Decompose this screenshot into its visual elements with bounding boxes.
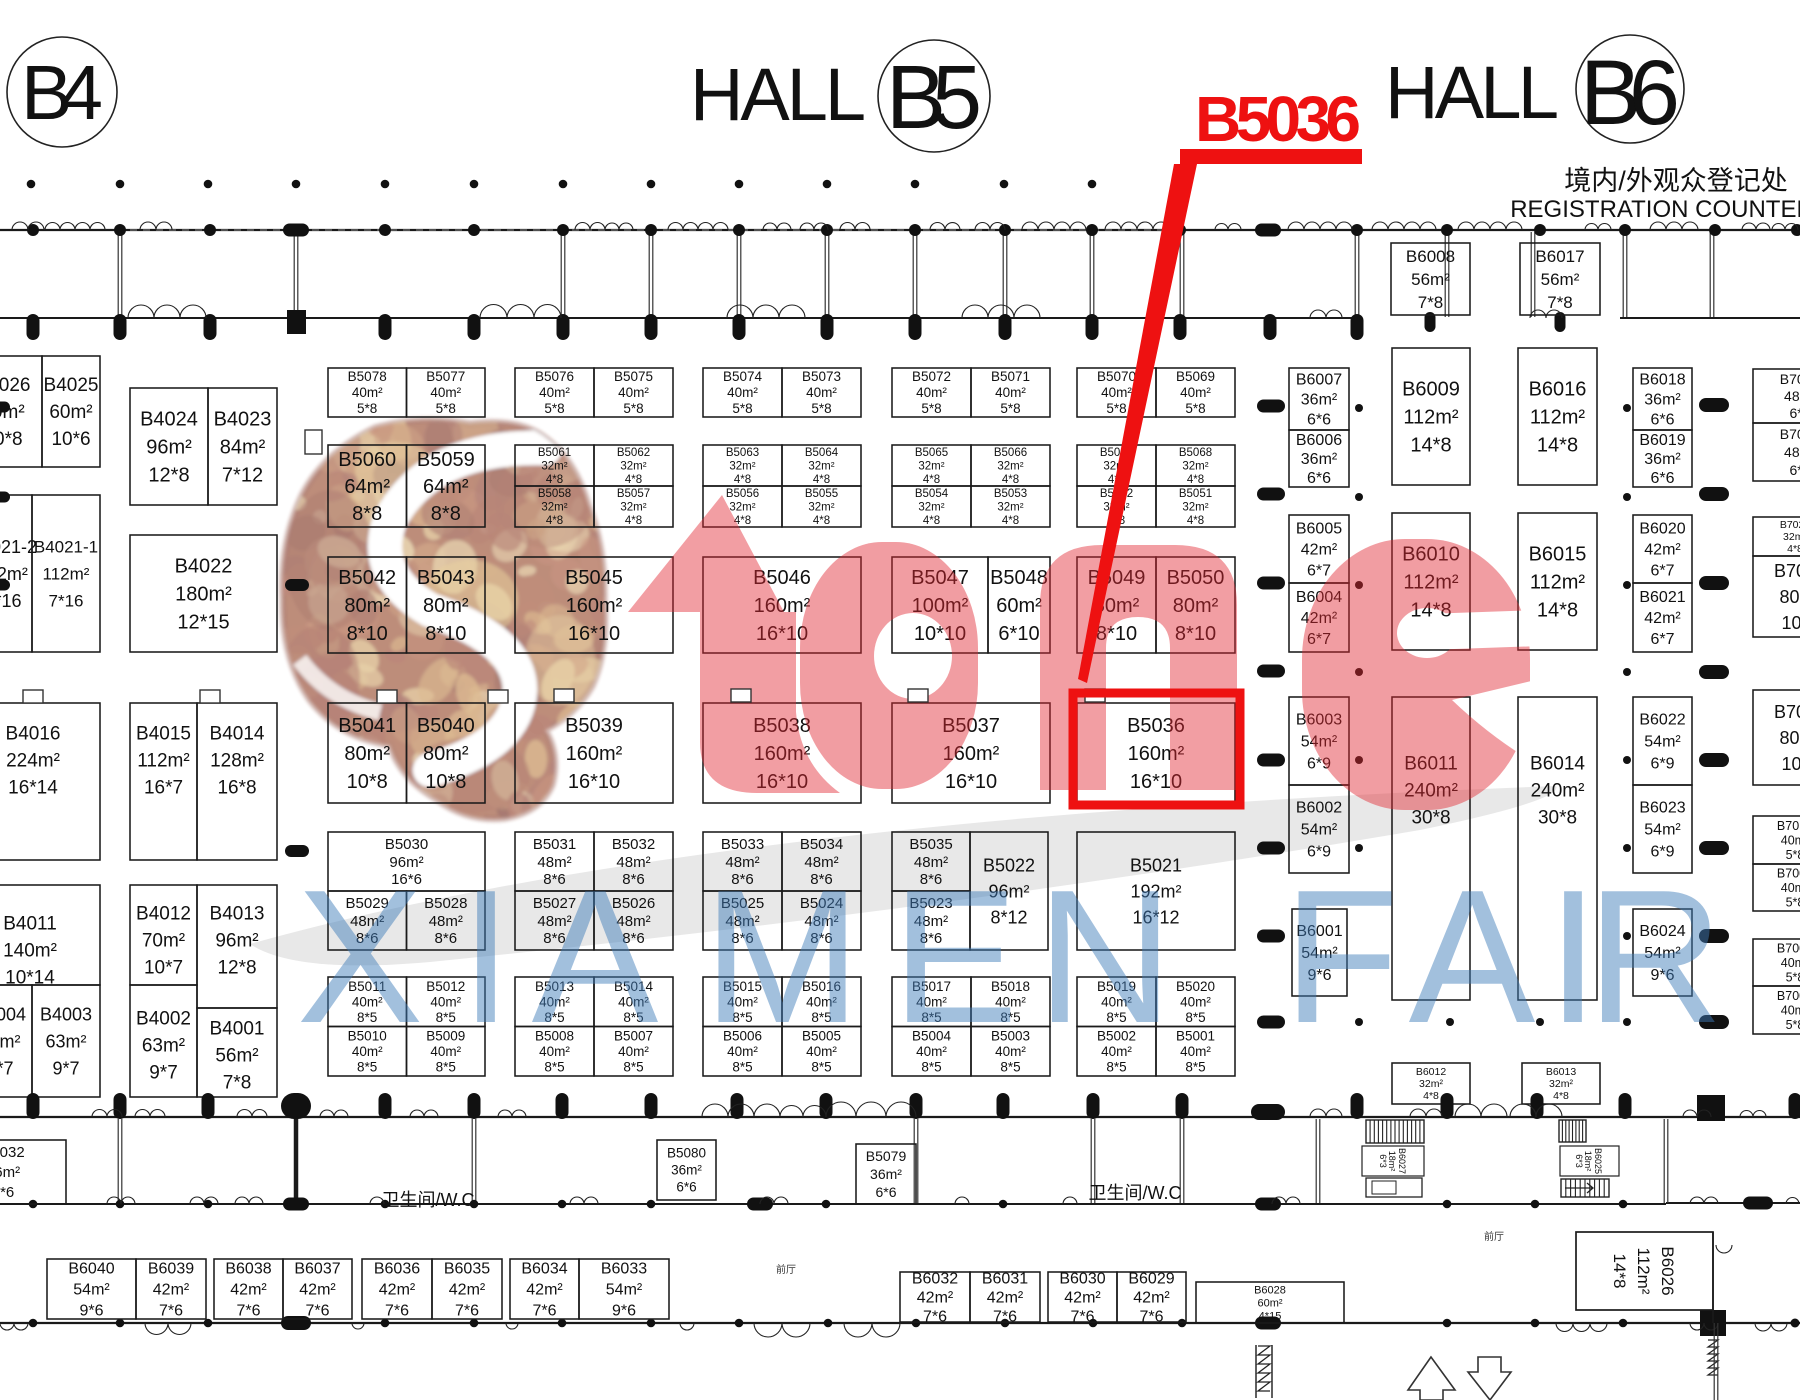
svg-text:4*8: 4*8 xyxy=(1553,1090,1569,1102)
svg-text:B6040: B6040 xyxy=(68,1261,114,1278)
svg-text:7*6: 7*6 xyxy=(993,1309,1017,1326)
svg-text:4*8: 4*8 xyxy=(1787,543,1800,555)
svg-text:B5076: B5076 xyxy=(535,369,574,384)
svg-text:B6036: B6036 xyxy=(374,1261,420,1278)
svg-text:7*12: 7*12 xyxy=(222,465,263,487)
svg-text:32m²: 32m² xyxy=(1783,531,1800,543)
svg-text:4*8: 4*8 xyxy=(923,515,940,527)
svg-text:32m²: 32m² xyxy=(541,502,567,514)
svg-text:B6012: B6012 xyxy=(1416,1066,1447,1078)
svg-text:60m²: 60m² xyxy=(1257,1297,1282,1309)
svg-text:32m²: 32m² xyxy=(1419,1078,1443,1090)
svg-text:7*6: 7*6 xyxy=(1070,1309,1094,1326)
svg-text:B6023: B6023 xyxy=(1639,800,1685,817)
svg-text:42m²: 42m² xyxy=(299,1282,336,1299)
svg-text:B6033: B6033 xyxy=(601,1261,647,1278)
svg-text:42m²: 42m² xyxy=(987,1290,1024,1307)
svg-text:B6037: B6037 xyxy=(294,1261,340,1278)
svg-text:140m²: 140m² xyxy=(3,941,57,962)
svg-text:B5057: B5057 xyxy=(617,488,650,500)
svg-text:B6030: B6030 xyxy=(1059,1271,1105,1288)
svg-text:B4013: B4013 xyxy=(210,904,265,925)
svg-text:B6021: B6021 xyxy=(1639,589,1685,606)
svg-text:112m²: 112m² xyxy=(1530,407,1586,429)
svg-text:5*8: 5*8 xyxy=(544,401,564,416)
svg-text:6*8: 6*8 xyxy=(1789,462,1800,478)
svg-text:B5062: B5062 xyxy=(617,447,650,459)
svg-text:40m²: 40m² xyxy=(430,995,461,1010)
svg-text:36m²: 36m² xyxy=(0,1164,20,1181)
svg-text:B6039: B6039 xyxy=(148,1261,194,1278)
svg-text:56m²: 56m² xyxy=(1541,270,1580,289)
svg-text:32m²: 32m² xyxy=(620,502,646,514)
svg-text:7*6: 7*6 xyxy=(455,1303,479,1320)
svg-text:7*16: 7*16 xyxy=(49,592,84,611)
svg-text:B5001: B5001 xyxy=(1176,1029,1215,1044)
svg-text:9*7: 9*7 xyxy=(52,1058,79,1078)
svg-text:8*10: 8*10 xyxy=(425,623,466,645)
svg-text:54m²: 54m² xyxy=(606,1282,643,1299)
svg-text:6*6: 6*6 xyxy=(1650,412,1674,429)
svg-text:7*8: 7*8 xyxy=(1418,293,1444,312)
svg-text:B5041: B5041 xyxy=(338,715,396,737)
svg-text:8*8: 8*8 xyxy=(431,503,461,525)
svg-text:M: M xyxy=(703,851,861,1063)
svg-text:B5066: B5066 xyxy=(994,447,1027,459)
svg-text:32m²: 32m² xyxy=(808,461,834,473)
svg-text:B7039: B7039 xyxy=(1780,426,1800,442)
svg-text:B6006: B6006 xyxy=(1296,432,1342,449)
svg-text:B5058: B5058 xyxy=(538,488,571,500)
svg-text:40m²: 40m² xyxy=(1180,1044,1211,1059)
svg-text:32m²: 32m² xyxy=(729,461,755,473)
svg-text:B6005: B6005 xyxy=(1296,521,1342,538)
svg-text:4*8: 4*8 xyxy=(734,474,751,486)
svg-text:40m²: 40m² xyxy=(1180,995,1211,1010)
svg-text:10*8: 10*8 xyxy=(347,771,388,793)
svg-text:B6026: B6026 xyxy=(1658,1246,1677,1295)
svg-text:B4: B4 xyxy=(21,50,103,136)
svg-text:6*7: 6*7 xyxy=(1650,631,1674,648)
svg-text:42m²: 42m² xyxy=(1064,1290,1101,1307)
svg-text:B6009: B6009 xyxy=(1402,379,1460,401)
svg-text:14*8: 14*8 xyxy=(1410,435,1451,457)
svg-text:B6002: B6002 xyxy=(1296,800,1342,817)
svg-text:4*8: 4*8 xyxy=(625,515,642,527)
svg-text:9*6: 9*6 xyxy=(79,1303,103,1320)
svg-text:9*7: 9*7 xyxy=(0,1058,14,1078)
svg-text:7*8: 7*8 xyxy=(223,1073,252,1094)
svg-text:180m²: 180m² xyxy=(175,584,232,606)
svg-text:7*6: 7*6 xyxy=(385,1303,409,1320)
svg-text:7*16: 7*16 xyxy=(0,591,22,611)
svg-text:32m²: 32m² xyxy=(620,461,646,473)
svg-text:7*6: 7*6 xyxy=(923,1309,947,1326)
svg-text:42m²: 42m² xyxy=(1301,542,1338,559)
svg-text:5*8: 5*8 xyxy=(811,401,831,416)
svg-text:112m²: 112m² xyxy=(137,751,189,772)
svg-text:B5032: B5032 xyxy=(0,1144,25,1161)
svg-text:4*15: 4*15 xyxy=(1259,1310,1282,1322)
svg-text:4*8: 4*8 xyxy=(625,474,642,486)
svg-text:B5064: B5064 xyxy=(805,447,839,459)
svg-text:R: R xyxy=(1586,851,1723,1063)
svg-text:5*8: 5*8 xyxy=(1786,970,1800,984)
svg-text:B5020: B5020 xyxy=(1176,979,1215,994)
svg-text:B6013: B6013 xyxy=(1546,1066,1577,1078)
svg-text:84m²: 84m² xyxy=(220,437,266,459)
svg-text:E: E xyxy=(892,851,1019,1063)
svg-text:4*8: 4*8 xyxy=(1002,515,1019,527)
svg-text:32m²: 32m² xyxy=(918,502,944,514)
svg-text:14*8: 14*8 xyxy=(1537,600,1578,622)
svg-text:48m²: 48m² xyxy=(429,913,463,930)
svg-text:128m²: 128m² xyxy=(210,751,264,772)
svg-text:B7007: B7007 xyxy=(1777,941,1800,955)
svg-text:B7022: B7022 xyxy=(1774,561,1800,581)
svg-text:B5060: B5060 xyxy=(338,449,396,471)
svg-text:9*6: 9*6 xyxy=(612,1303,636,1320)
svg-text:80m²: 80m² xyxy=(1779,728,1800,748)
svg-text:B5055: B5055 xyxy=(805,488,838,500)
svg-text:B5053: B5053 xyxy=(994,488,1027,500)
svg-text:B6016: B6016 xyxy=(1529,379,1587,401)
svg-text:32m²: 32m² xyxy=(1182,461,1208,473)
svg-text:36m²: 36m² xyxy=(1644,451,1681,468)
svg-text:B4002: B4002 xyxy=(136,1009,191,1030)
svg-text:B5039: B5039 xyxy=(565,715,623,737)
svg-text:64m²: 64m² xyxy=(423,476,469,498)
svg-text:6*10: 6*10 xyxy=(998,623,1039,645)
svg-text:B5068: B5068 xyxy=(1179,447,1212,459)
svg-text:80m²: 80m² xyxy=(344,743,390,765)
svg-text:4*8: 4*8 xyxy=(813,515,830,527)
svg-text:36m²: 36m² xyxy=(671,1163,702,1178)
svg-text:40m²: 40m² xyxy=(1781,881,1800,895)
svg-text:40m²: 40m² xyxy=(539,385,570,400)
svg-text:B7006: B7006 xyxy=(1777,989,1800,1003)
svg-text:B4024: B4024 xyxy=(140,409,198,431)
svg-text:A: A xyxy=(1409,851,1536,1063)
svg-text:32m²: 32m² xyxy=(997,502,1023,514)
svg-text:B5080: B5080 xyxy=(667,1146,706,1161)
svg-text:4*8: 4*8 xyxy=(546,515,563,527)
svg-text:5*8: 5*8 xyxy=(436,401,456,416)
svg-text:5*8: 5*8 xyxy=(1000,401,1020,416)
svg-text:14*8: 14*8 xyxy=(1537,435,1578,457)
svg-text:5*8: 5*8 xyxy=(1786,1018,1800,1032)
svg-text:16*7: 16*7 xyxy=(144,778,183,799)
svg-text:112m²: 112m² xyxy=(43,565,90,584)
svg-text:B4004: B4004 xyxy=(0,1004,26,1024)
svg-text:6*3: 6*3 xyxy=(1378,1154,1388,1168)
svg-text:B6014: B6014 xyxy=(1530,754,1585,775)
svg-text:30*8: 30*8 xyxy=(1411,808,1450,829)
svg-text:4*8: 4*8 xyxy=(546,474,563,486)
svg-text:96m²: 96m² xyxy=(215,931,258,952)
svg-text:HALL: HALL xyxy=(690,53,866,136)
svg-text:B4023: B4023 xyxy=(214,409,272,431)
svg-text:B5040: B5040 xyxy=(417,715,475,737)
svg-text:B6025: B6025 xyxy=(1593,1148,1603,1174)
svg-text:6*6: 6*6 xyxy=(1650,470,1674,487)
svg-text:B5063: B5063 xyxy=(726,447,759,459)
svg-text:56m²: 56m² xyxy=(215,1046,258,1067)
svg-text:48m²: 48m² xyxy=(1784,388,1800,404)
svg-text:6*8: 6*8 xyxy=(1789,405,1800,421)
svg-text:32m²: 32m² xyxy=(729,502,755,514)
svg-text:40m²: 40m² xyxy=(995,385,1026,400)
svg-text:8*8: 8*8 xyxy=(352,503,382,525)
svg-text:10*8: 10*8 xyxy=(425,771,466,793)
svg-text:B6018: B6018 xyxy=(1639,372,1685,389)
svg-text:80m²: 80m² xyxy=(344,595,390,617)
svg-text:54m²: 54m² xyxy=(1301,822,1338,839)
svg-text:54m²: 54m² xyxy=(73,1282,110,1299)
svg-text:48m²: 48m² xyxy=(1784,444,1800,460)
svg-text:B5078: B5078 xyxy=(348,369,387,384)
svg-text:14*8: 14*8 xyxy=(1610,1254,1629,1289)
svg-text:5*8: 5*8 xyxy=(1185,401,1205,416)
svg-text:7*6: 7*6 xyxy=(532,1303,556,1320)
svg-text:12*8: 12*8 xyxy=(148,465,189,487)
svg-text:B7012: B7012 xyxy=(1774,702,1800,722)
svg-text:4*8: 4*8 xyxy=(923,474,940,486)
svg-text:6*3: 6*3 xyxy=(1574,1154,1584,1168)
svg-text:40m²: 40m² xyxy=(430,385,461,400)
svg-text:70m²: 70m² xyxy=(142,931,185,952)
svg-text:10*6: 10*6 xyxy=(51,429,90,450)
svg-text:16*8: 16*8 xyxy=(217,778,256,799)
svg-text:6*7: 6*7 xyxy=(1307,563,1331,580)
svg-text:16*10: 16*10 xyxy=(568,623,620,645)
svg-text:B4011: B4011 xyxy=(3,914,57,935)
svg-text:54m²: 54m² xyxy=(1644,822,1681,839)
svg-text:B5079: B5079 xyxy=(866,1148,907,1164)
svg-text:8*5: 8*5 xyxy=(436,1010,456,1025)
svg-text:B6031: B6031 xyxy=(982,1271,1028,1288)
svg-text:B7008: B7008 xyxy=(1777,866,1800,880)
svg-text:B6015: B6015 xyxy=(1529,544,1587,566)
svg-text:X: X xyxy=(297,851,424,1063)
svg-text:B5069: B5069 xyxy=(1176,369,1215,384)
svg-text:B7013: B7013 xyxy=(1777,819,1800,833)
svg-text:I: I xyxy=(460,851,513,1063)
svg-text:B5070: B5070 xyxy=(1097,369,1136,384)
svg-text:63m²: 63m² xyxy=(142,1036,185,1057)
svg-text:B6: B6 xyxy=(1580,42,1680,144)
svg-text:40m²: 40m² xyxy=(1781,956,1800,970)
svg-text:80m²: 80m² xyxy=(423,595,469,617)
svg-text:前厅: 前厅 xyxy=(1484,1230,1504,1243)
svg-text:B5075: B5075 xyxy=(614,369,653,384)
svg-text:60m²: 60m² xyxy=(996,595,1042,617)
svg-text:前厅: 前厅 xyxy=(776,1263,796,1276)
svg-text:7*6: 7*6 xyxy=(1139,1309,1163,1326)
svg-text:B5074: B5074 xyxy=(723,369,763,384)
svg-text:6*6: 6*6 xyxy=(676,1180,696,1195)
svg-text:7*6: 7*6 xyxy=(305,1303,329,1320)
svg-text:5*8: 5*8 xyxy=(1106,401,1126,416)
svg-text:224m²: 224m² xyxy=(6,751,60,772)
svg-text:16*10: 16*10 xyxy=(945,771,997,793)
svg-text:40m²: 40m² xyxy=(1101,385,1132,400)
svg-text:B4003: B4003 xyxy=(40,1004,92,1024)
svg-text:B4022: B4022 xyxy=(175,556,233,578)
svg-text:16*10: 16*10 xyxy=(568,771,620,793)
svg-text:36m²: 36m² xyxy=(1301,451,1338,468)
svg-text:32m²: 32m² xyxy=(1549,1078,1573,1090)
svg-text:32m²: 32m² xyxy=(541,461,567,473)
svg-text:5*8: 5*8 xyxy=(357,401,377,416)
svg-text:F: F xyxy=(1283,851,1399,1063)
svg-text:N: N xyxy=(1036,851,1173,1063)
svg-text:B4014: B4014 xyxy=(210,724,265,745)
svg-text:36m²: 36m² xyxy=(1644,392,1681,409)
svg-text:42m²: 42m² xyxy=(1133,1290,1170,1307)
svg-text:6*6: 6*6 xyxy=(0,1184,14,1201)
svg-text:30*8: 30*8 xyxy=(1538,808,1577,829)
svg-text:B6020: B6020 xyxy=(1639,521,1685,538)
svg-text:5*8: 5*8 xyxy=(1786,848,1800,862)
svg-text:6*6: 6*6 xyxy=(1307,470,1331,487)
svg-text:B6022: B6022 xyxy=(1639,712,1685,729)
svg-text:B6029: B6029 xyxy=(1128,1271,1174,1288)
svg-text:40m²: 40m² xyxy=(806,385,837,400)
svg-text:60m²: 60m² xyxy=(49,402,92,423)
svg-text:32m²: 32m² xyxy=(997,461,1023,473)
svg-text:8*6: 8*6 xyxy=(435,930,458,947)
svg-text:8*5: 8*5 xyxy=(436,1060,456,1075)
svg-text:160m²: 160m² xyxy=(566,743,623,765)
svg-text:5*8: 5*8 xyxy=(732,401,752,416)
svg-text:A: A xyxy=(532,851,659,1063)
svg-text:112m²: 112m² xyxy=(1530,572,1586,594)
svg-text:8*5: 8*5 xyxy=(1185,1010,1205,1025)
svg-text:40m²: 40m² xyxy=(1180,385,1211,400)
svg-text:B5072: B5072 xyxy=(912,369,951,384)
svg-text:42m²: 42m² xyxy=(917,1290,954,1307)
svg-text:5*8: 5*8 xyxy=(1786,895,1800,909)
svg-text:42m²: 42m² xyxy=(230,1282,267,1299)
svg-text:4*8: 4*8 xyxy=(1423,1090,1439,1102)
svg-text:B6019: B6019 xyxy=(1639,432,1685,449)
svg-text:B5073: B5073 xyxy=(802,369,841,384)
svg-text:160m²: 160m² xyxy=(566,595,623,617)
svg-text:B5048: B5048 xyxy=(990,567,1048,589)
svg-text:B5: B5 xyxy=(886,48,982,148)
svg-text:64m²: 64m² xyxy=(344,476,390,498)
svg-text:B5045: B5045 xyxy=(565,567,623,589)
svg-text:96m²: 96m² xyxy=(146,437,192,459)
svg-text:6*6: 6*6 xyxy=(1307,412,1331,429)
svg-text:240m²: 240m² xyxy=(1531,781,1585,802)
svg-text:5*8: 5*8 xyxy=(921,401,941,416)
svg-text:4*8: 4*8 xyxy=(813,474,830,486)
svg-text:36m²: 36m² xyxy=(1301,392,1338,409)
svg-text:B5065: B5065 xyxy=(915,447,948,459)
svg-text:16*14: 16*14 xyxy=(8,778,58,799)
svg-text:B5054: B5054 xyxy=(915,488,949,500)
svg-text:5*8: 5*8 xyxy=(623,401,643,416)
svg-text:B5059: B5059 xyxy=(417,449,475,471)
svg-text:12*8: 12*8 xyxy=(217,958,256,979)
svg-text:4*8: 4*8 xyxy=(1187,515,1204,527)
svg-text:B6007: B6007 xyxy=(1296,372,1342,389)
svg-text:B6038: B6038 xyxy=(225,1261,271,1278)
svg-text:7*6: 7*6 xyxy=(236,1303,260,1320)
svg-text:32m²: 32m² xyxy=(1182,502,1208,514)
svg-text:42m²: 42m² xyxy=(526,1282,563,1299)
svg-text:B4025: B4025 xyxy=(44,375,99,396)
svg-text:B4021-1: B4021-1 xyxy=(34,538,98,557)
svg-text:112m²: 112m² xyxy=(1403,407,1459,429)
svg-text:42m²: 42m² xyxy=(1644,542,1681,559)
svg-text:9*7: 9*7 xyxy=(149,1063,178,1084)
svg-text:B4026: B4026 xyxy=(0,375,30,396)
svg-text:7*6: 7*6 xyxy=(159,1303,183,1320)
svg-text:B6027: B6027 xyxy=(1397,1148,1407,1174)
svg-text:56m²: 56m² xyxy=(1411,270,1450,289)
svg-text:卫生间/W.C: 卫生间/W.C xyxy=(1089,1183,1182,1203)
svg-text:12*15: 12*15 xyxy=(177,612,229,634)
svg-text:B6032: B6032 xyxy=(912,1271,958,1288)
svg-text:10*8: 10*8 xyxy=(1781,754,1800,774)
svg-text:112m²: 112m² xyxy=(1634,1248,1653,1295)
svg-text:B6017: B6017 xyxy=(1535,247,1584,266)
svg-text:32m²: 32m² xyxy=(918,461,944,473)
svg-text:40m²: 40m² xyxy=(430,1044,461,1059)
svg-text:4*8: 4*8 xyxy=(1002,474,1019,486)
svg-text:B7018: B7018 xyxy=(1780,371,1800,387)
svg-text:B4016: B4016 xyxy=(6,724,61,745)
svg-text:8*5: 8*5 xyxy=(1185,1060,1205,1075)
svg-text:8*10: 8*10 xyxy=(347,623,388,645)
svg-text:B5043: B5043 xyxy=(417,567,475,589)
svg-text:REGISTRATION COUNTER: REGISTRATION COUNTER xyxy=(1510,196,1800,223)
svg-text:B4015: B4015 xyxy=(136,724,191,745)
svg-text:6*6: 6*6 xyxy=(875,1184,896,1200)
svg-text:卫生间/W.C: 卫生间/W.C xyxy=(382,1190,475,1210)
svg-text:63m²: 63m² xyxy=(45,1031,86,1051)
svg-text:7*8: 7*8 xyxy=(1547,293,1573,312)
svg-text:B6034: B6034 xyxy=(521,1261,567,1278)
svg-text:40m²: 40m² xyxy=(1781,1003,1800,1017)
svg-text:B5071: B5071 xyxy=(991,369,1030,384)
svg-text:80m²: 80m² xyxy=(1779,587,1800,607)
svg-text:54m²: 54m² xyxy=(1644,734,1681,751)
svg-text:4*8: 4*8 xyxy=(1187,474,1204,486)
svg-text:40m²: 40m² xyxy=(618,385,649,400)
svg-text:63m²: 63m² xyxy=(0,1031,21,1051)
svg-text:B6035: B6035 xyxy=(444,1261,490,1278)
svg-text:B4012: B4012 xyxy=(136,904,191,925)
svg-text:40m²: 40m² xyxy=(352,385,383,400)
svg-text:境内/外观众登记处: 境内/外观众登记处 xyxy=(1564,166,1788,196)
svg-text:6*7: 6*7 xyxy=(1650,563,1674,580)
svg-text:HALL: HALL xyxy=(1385,51,1559,134)
svg-text:40m²: 40m² xyxy=(727,385,758,400)
svg-text:10*7: 10*7 xyxy=(144,958,183,979)
svg-text:B5042: B5042 xyxy=(338,567,396,589)
svg-text:B5056: B5056 xyxy=(726,488,759,500)
svg-text:10*8: 10*8 xyxy=(1781,613,1800,633)
svg-text:B5036: B5036 xyxy=(1195,83,1361,155)
svg-text:B7023: B7023 xyxy=(1780,519,1800,531)
svg-text:B5051: B5051 xyxy=(1179,488,1212,500)
svg-text:B4001: B4001 xyxy=(210,1019,265,1040)
svg-text:42m²: 42m² xyxy=(379,1282,416,1299)
